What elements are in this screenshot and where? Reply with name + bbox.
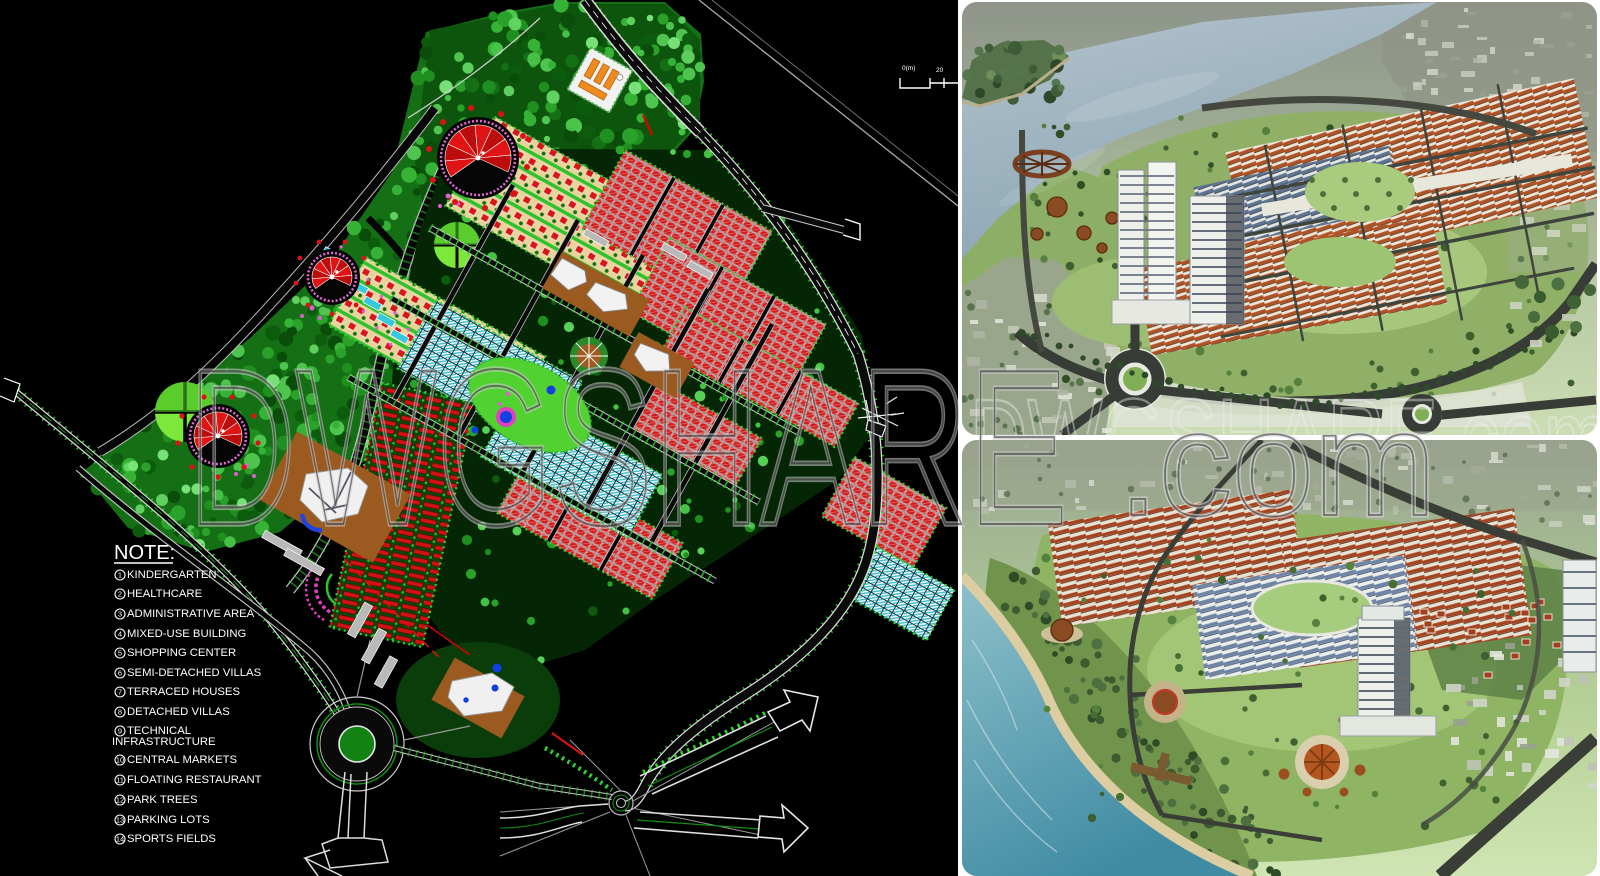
svg-text:DWGSHARE: DWGSHARE: [188, 324, 1068, 572]
svg-text:.com: .com: [1118, 379, 1436, 547]
